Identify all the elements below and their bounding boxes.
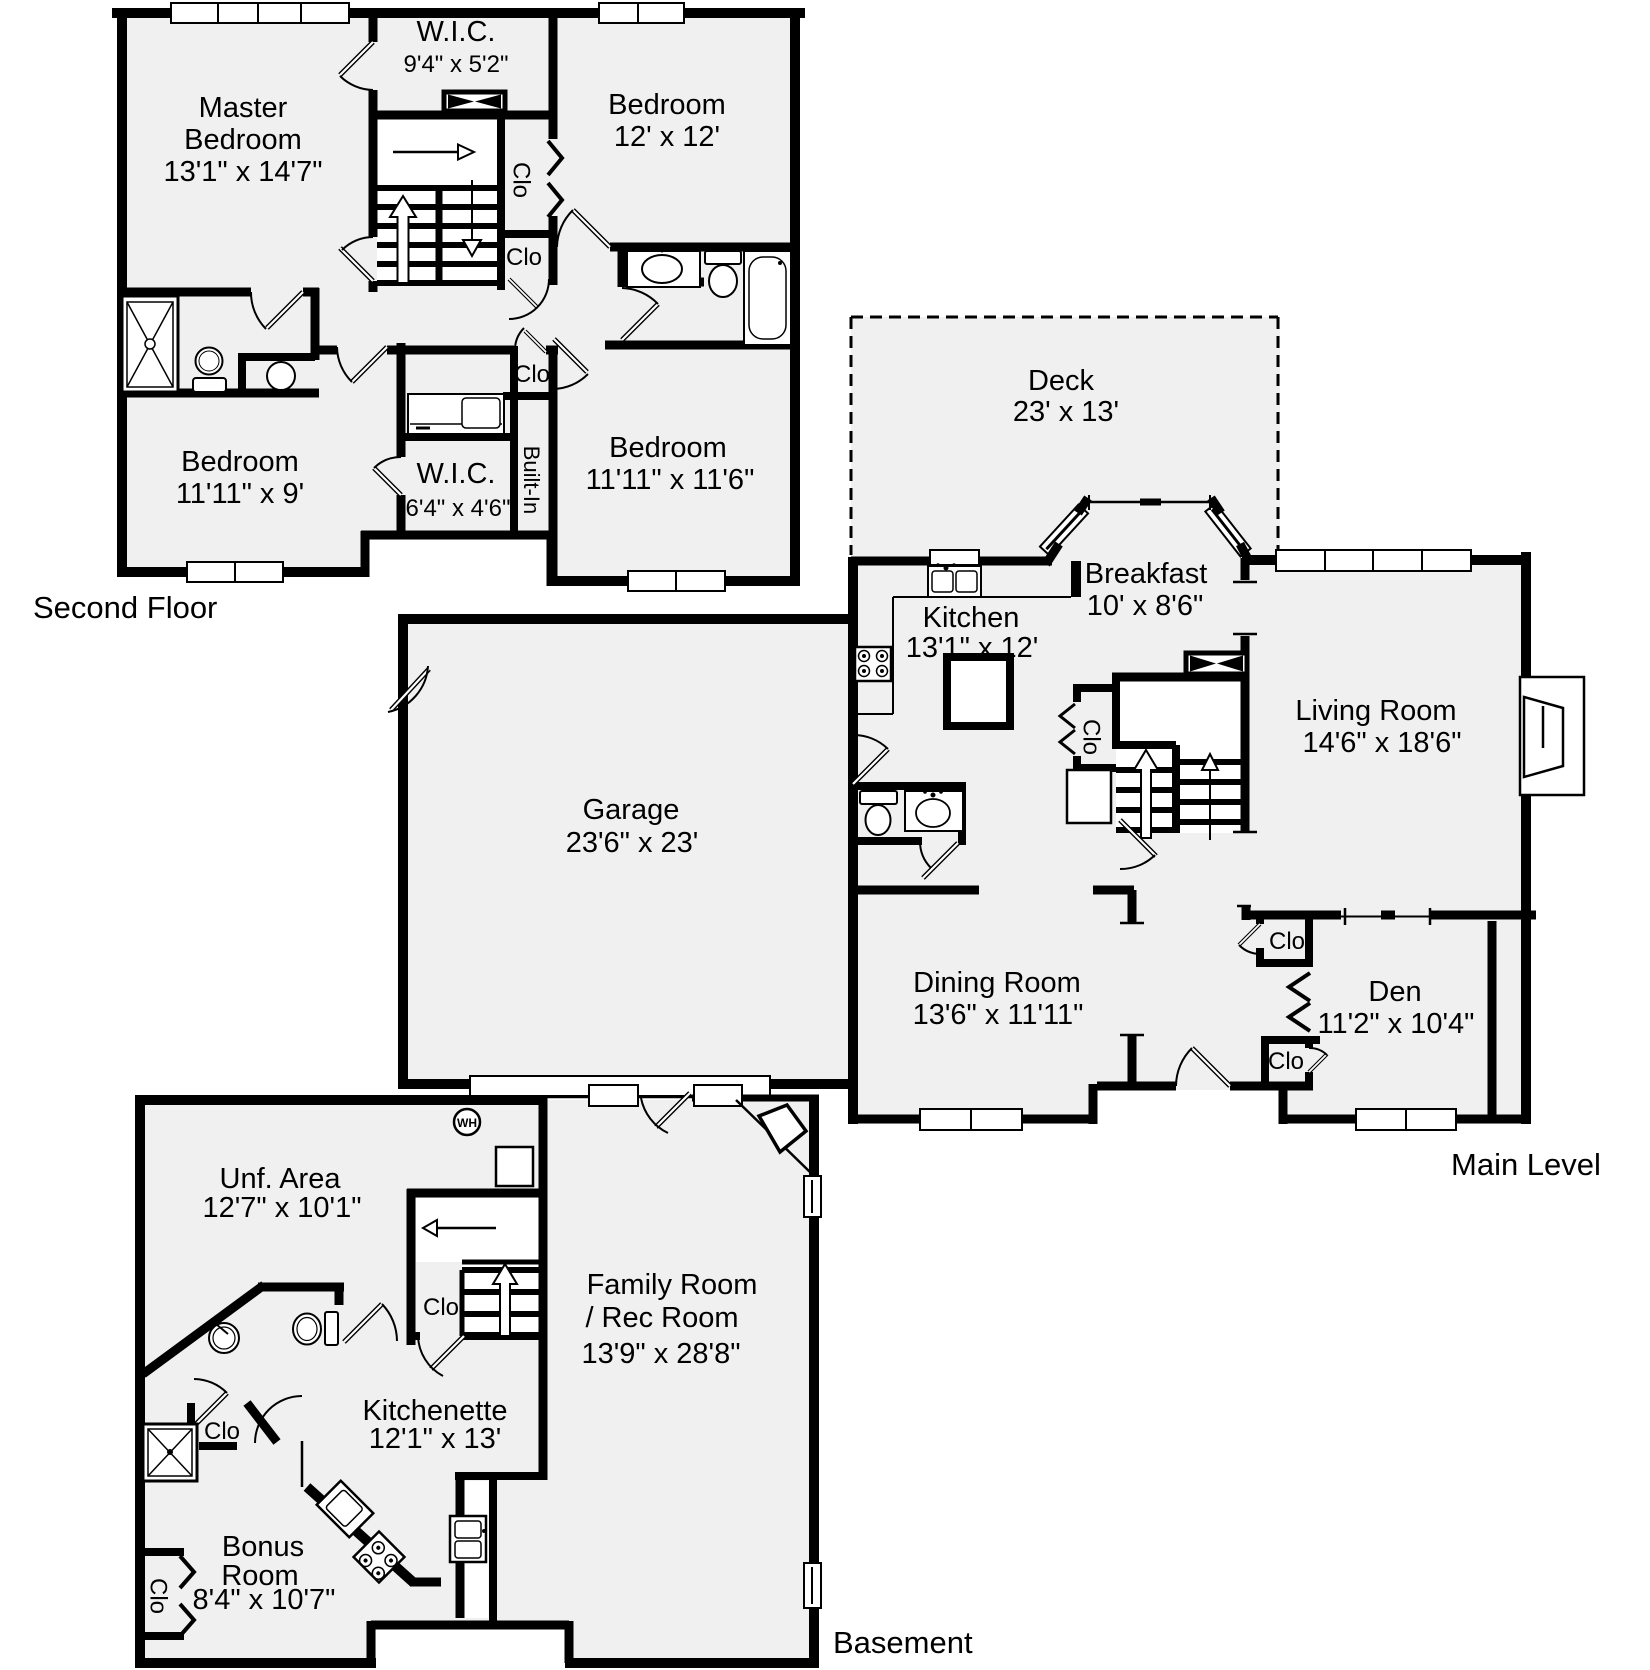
svg-text:Master: Master bbox=[199, 92, 288, 124]
svg-text:Den: Den bbox=[1368, 976, 1421, 1008]
svg-text:Clo: Clo bbox=[423, 1294, 459, 1321]
svg-text:Clo: Clo bbox=[508, 162, 535, 198]
svg-text:Clo: Clo bbox=[1268, 1048, 1304, 1075]
svg-text:13'9" x 28'8": 13'9" x 28'8" bbox=[581, 1338, 740, 1370]
svg-text:Garage: Garage bbox=[583, 794, 680, 826]
svg-text:Clo: Clo bbox=[506, 244, 542, 271]
svg-text:Living Room: Living Room bbox=[1295, 695, 1456, 727]
svg-text:9'4" x 5'2": 9'4" x 5'2" bbox=[404, 51, 509, 78]
svg-text:W.I.C.: W.I.C. bbox=[417, 458, 496, 490]
svg-text:Bedroom: Bedroom bbox=[181, 446, 299, 478]
svg-text:Built-In: Built-In bbox=[519, 446, 544, 514]
svg-text:23'6" x 23': 23'6" x 23' bbox=[566, 827, 699, 859]
svg-text:Clo: Clo bbox=[514, 361, 550, 388]
svg-text:Basement: Basement bbox=[833, 1625, 973, 1660]
svg-text:Deck: Deck bbox=[1028, 365, 1095, 397]
svg-text:13'1" x 12': 13'1" x 12' bbox=[906, 632, 1039, 664]
svg-text:Bedroom: Bedroom bbox=[608, 89, 726, 121]
svg-text:11'2" x 10'4": 11'2" x 10'4" bbox=[1318, 1008, 1475, 1040]
svg-text:13'1" x 14'7": 13'1" x 14'7" bbox=[163, 156, 322, 188]
svg-text:11'11" x 9': 11'11" x 9' bbox=[176, 478, 304, 510]
svg-text:Dining Room: Dining Room bbox=[913, 967, 1081, 999]
svg-text:12'1" x 13': 12'1" x 13' bbox=[369, 1423, 502, 1455]
svg-text:Bedroom: Bedroom bbox=[609, 432, 727, 464]
svg-text:Family Room: Family Room bbox=[587, 1269, 758, 1301]
svg-text:Breakfast: Breakfast bbox=[1085, 558, 1208, 590]
svg-text:11'11" x 11'6": 11'11" x 11'6" bbox=[586, 464, 755, 496]
svg-text:Clo: Clo bbox=[145, 1578, 172, 1614]
svg-text:12'7" x 10'1": 12'7" x 10'1" bbox=[202, 1192, 361, 1224]
svg-text:8'4" x 10'7": 8'4" x 10'7" bbox=[193, 1584, 336, 1616]
svg-text:10' x 8'6": 10' x 8'6" bbox=[1087, 590, 1204, 622]
svg-text:Main Level: Main Level bbox=[1451, 1147, 1601, 1182]
svg-text:14'6" x 18'6": 14'6" x 18'6" bbox=[1302, 727, 1461, 759]
svg-text:Clo: Clo bbox=[204, 1418, 240, 1445]
svg-text:W.I.C.: W.I.C. bbox=[417, 16, 496, 48]
svg-text:12' x 12': 12' x 12' bbox=[614, 121, 720, 153]
svg-text:Bonus: Bonus bbox=[222, 1531, 304, 1563]
svg-text:Kitchen: Kitchen bbox=[923, 602, 1020, 634]
svg-text:6'4" x 4'6": 6'4" x 4'6" bbox=[406, 495, 511, 522]
svg-text:/ Rec Room: / Rec Room bbox=[585, 1302, 738, 1334]
svg-text:WH: WH bbox=[457, 1116, 477, 1130]
svg-text:23' x 13': 23' x 13' bbox=[1013, 396, 1119, 428]
svg-text:13'6" x 11'11": 13'6" x 11'11" bbox=[913, 999, 1084, 1031]
svg-text:Second Floor: Second Floor bbox=[33, 590, 217, 625]
svg-text:Clo: Clo bbox=[1269, 928, 1305, 955]
svg-text:Clo: Clo bbox=[1078, 719, 1105, 755]
svg-text:Unf. Area: Unf. Area bbox=[220, 1163, 342, 1195]
svg-text:Bedroom: Bedroom bbox=[184, 124, 302, 156]
